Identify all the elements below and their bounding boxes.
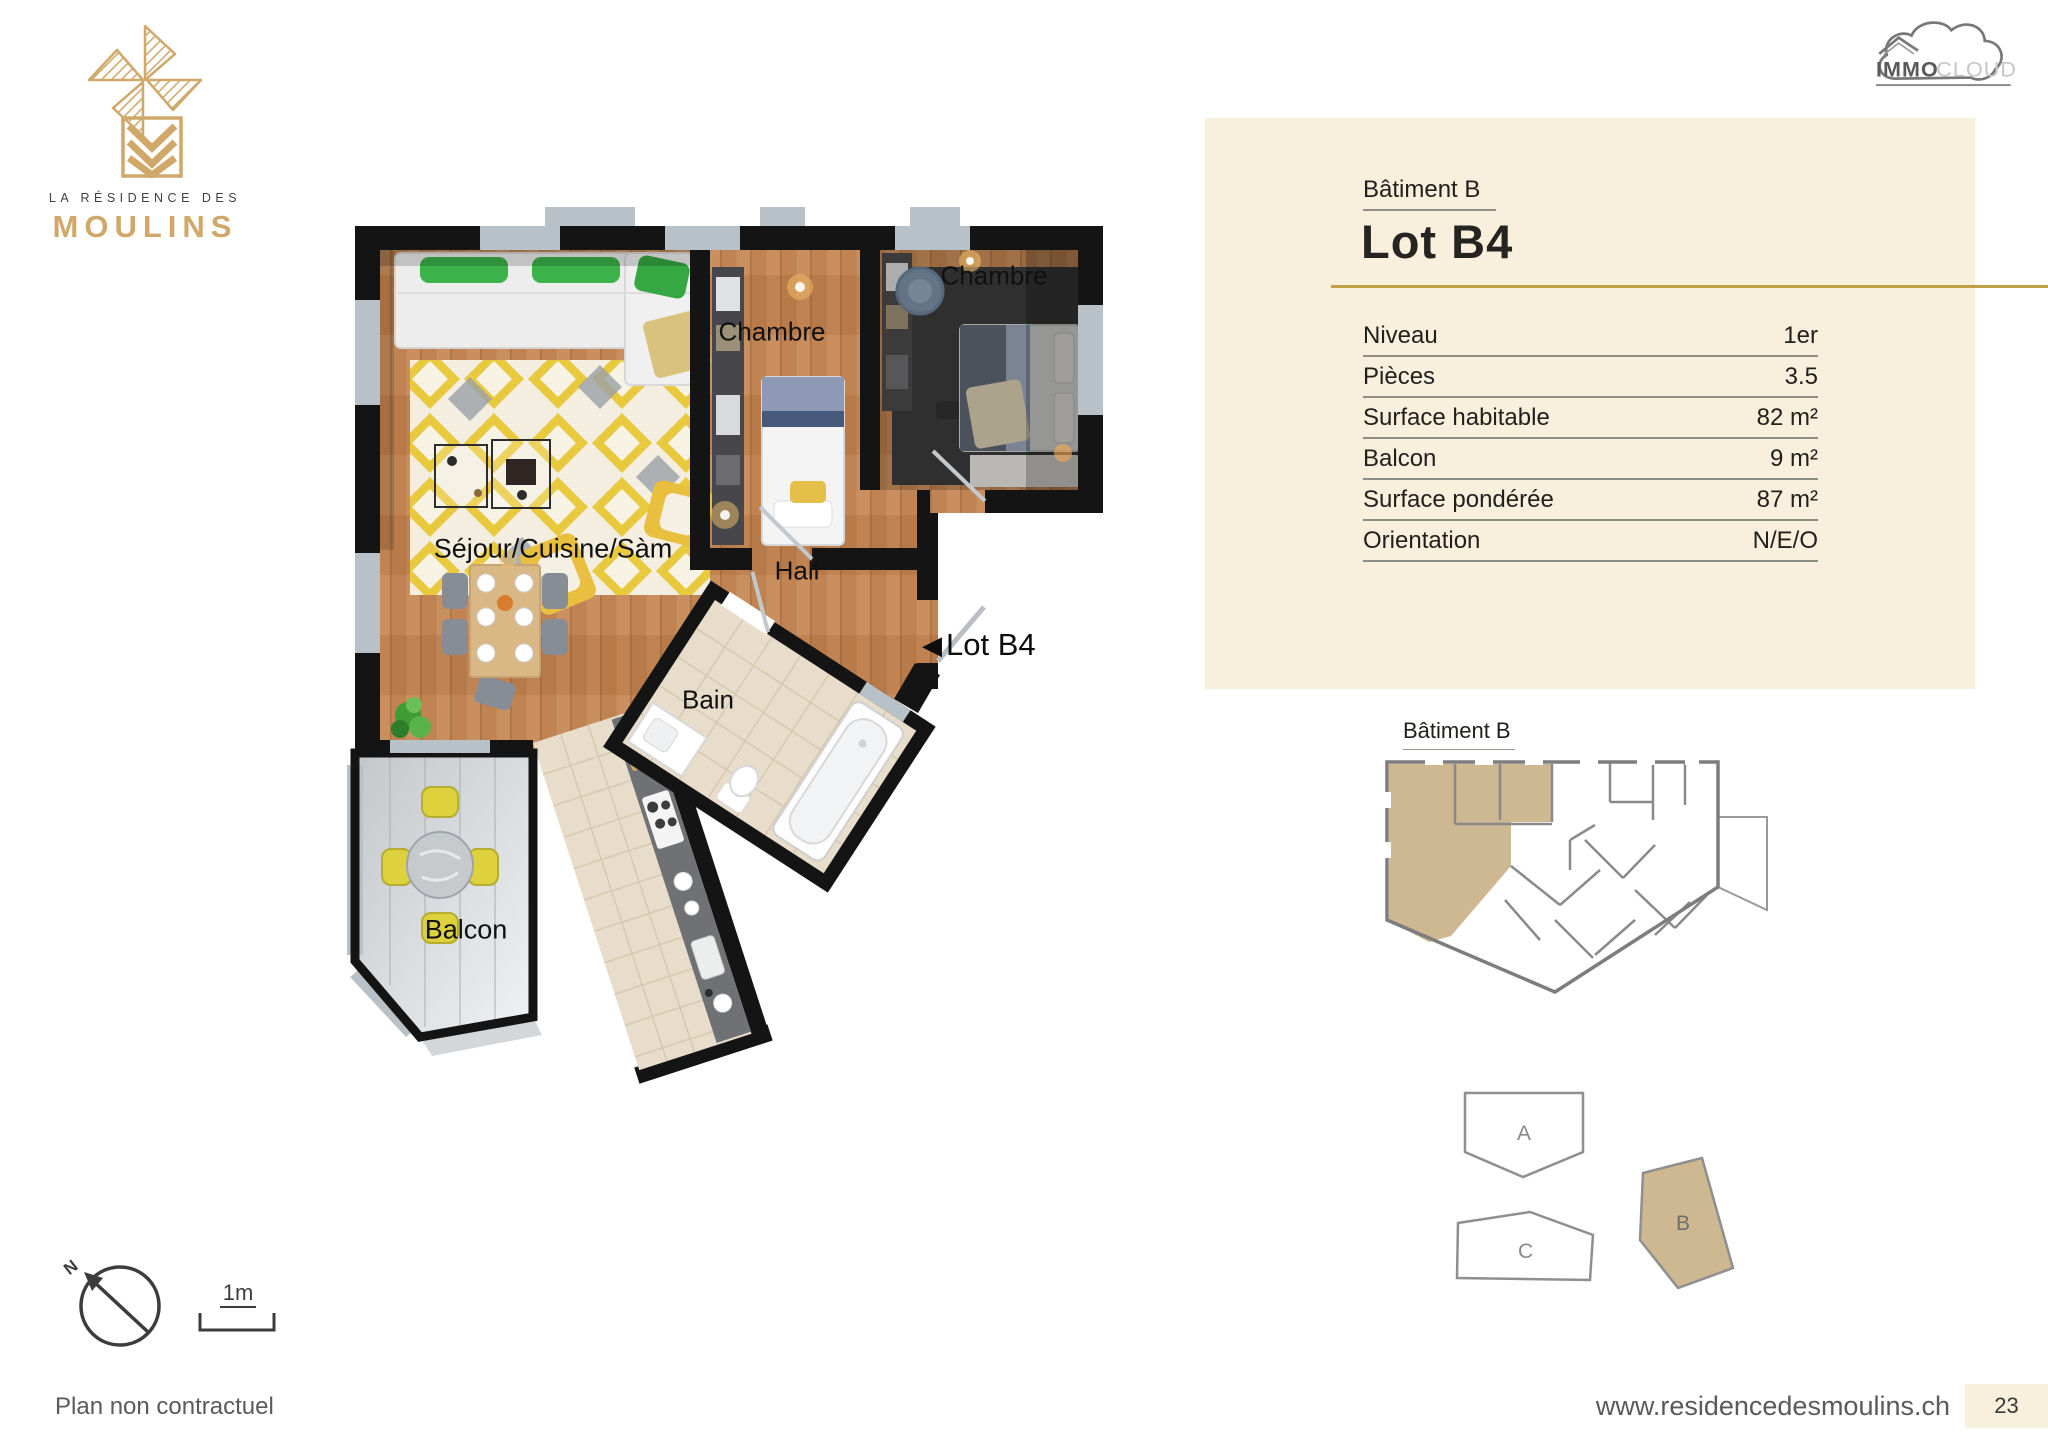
spec-value: 1er: [1783, 322, 1818, 350]
spec-row-niveau: Niveau 1er: [1363, 316, 1818, 357]
room-label-chambre-1: Chambre: [719, 317, 826, 348]
page-number: 23: [1994, 1393, 2018, 1419]
spec-row-surface-ponderee: Surface pondérée 87 m²: [1363, 480, 1818, 521]
panel-building-label: Bâtiment B: [1363, 176, 1496, 211]
website-link[interactable]: www.residencedesmoulins.ch: [1596, 1391, 1950, 1422]
scale-bar: 1m: [196, 1280, 280, 1334]
building-b-label: B: [1676, 1212, 1690, 1235]
compass: N: [60, 1246, 184, 1364]
floor-plan: Chambre Chambre Séjour/Cuisine/Sàm Hall …: [270, 155, 1120, 1100]
compass-needle-icon: [92, 1280, 148, 1332]
lot-entrance-marker: ◀ Lot B4: [922, 627, 1036, 663]
spec-label: Surface habitable: [1363, 404, 1550, 432]
spec-label: Pièces: [1363, 363, 1435, 391]
gold-divider: [1331, 285, 2048, 288]
room-label-balcon: Balcon: [425, 915, 508, 946]
partner-logo-light: CLOUD: [1936, 57, 2017, 81]
lot-info-panel: Bâtiment B Lot B4 Niveau 1er Pièces 3.5 …: [1205, 118, 1975, 689]
compass-north-label: N: [60, 1256, 81, 1279]
spec-label: Orientation: [1363, 527, 1480, 555]
disclaimer-text: Plan non contractuel: [55, 1393, 274, 1421]
spec-row-orientation: Orientation N/E/O: [1363, 521, 1818, 562]
spec-row-balcon: Balcon 9 m²: [1363, 439, 1818, 480]
windmill-icon: [83, 18, 207, 178]
spec-label: Balcon: [1363, 445, 1436, 473]
brand-logo: LA RÉSIDENCE DES MOULINS: [35, 18, 255, 245]
room-label-sejour: Séjour/Cuisine/Sàm: [434, 534, 673, 565]
spec-label: Niveau: [1363, 322, 1438, 350]
building-b-mini-plan: [1355, 690, 1805, 1020]
scale-label: 1m: [220, 1280, 257, 1308]
brand-name-main: MOULINS: [35, 209, 255, 245]
spec-value: 3.5: [1785, 363, 1818, 391]
spec-label: Surface pondérée: [1363, 486, 1554, 514]
entrance-arrow-icon: ◀: [922, 632, 942, 658]
spec-table: Niveau 1er Pièces 3.5 Surface habitable …: [1363, 316, 1818, 562]
site-plan: A C B: [1430, 1080, 1770, 1320]
panel-lot-title: Lot B4: [1361, 214, 1513, 269]
page-number-badge: 23: [1965, 1384, 2048, 1428]
room-label-hall: Hall: [775, 556, 820, 587]
building-a-label: A: [1517, 1122, 1531, 1145]
spec-value: 87 m²: [1757, 486, 1818, 514]
lot-entrance-label: Lot B4: [946, 627, 1036, 663]
spec-value: 9 m²: [1770, 445, 1818, 473]
room-label-chambre-2: Chambre: [941, 261, 1048, 292]
spec-value: N/E/O: [1753, 527, 1818, 555]
spec-row-pieces: Pièces 3.5: [1363, 357, 1818, 398]
immocloud-logo: IMMO CLOUD: [1860, 14, 2032, 98]
partner-logo-bold: IMMO: [1876, 57, 1939, 81]
brand-name-top: LA RÉSIDENCE DES: [35, 191, 255, 205]
spec-row-surface-habitable: Surface habitable 82 m²: [1363, 398, 1818, 439]
scale-bracket-icon: [196, 1310, 280, 1334]
building-c-label: C: [1518, 1240, 1533, 1263]
room-label-bain: Bain: [682, 685, 734, 716]
spec-value: 82 m²: [1757, 404, 1818, 432]
